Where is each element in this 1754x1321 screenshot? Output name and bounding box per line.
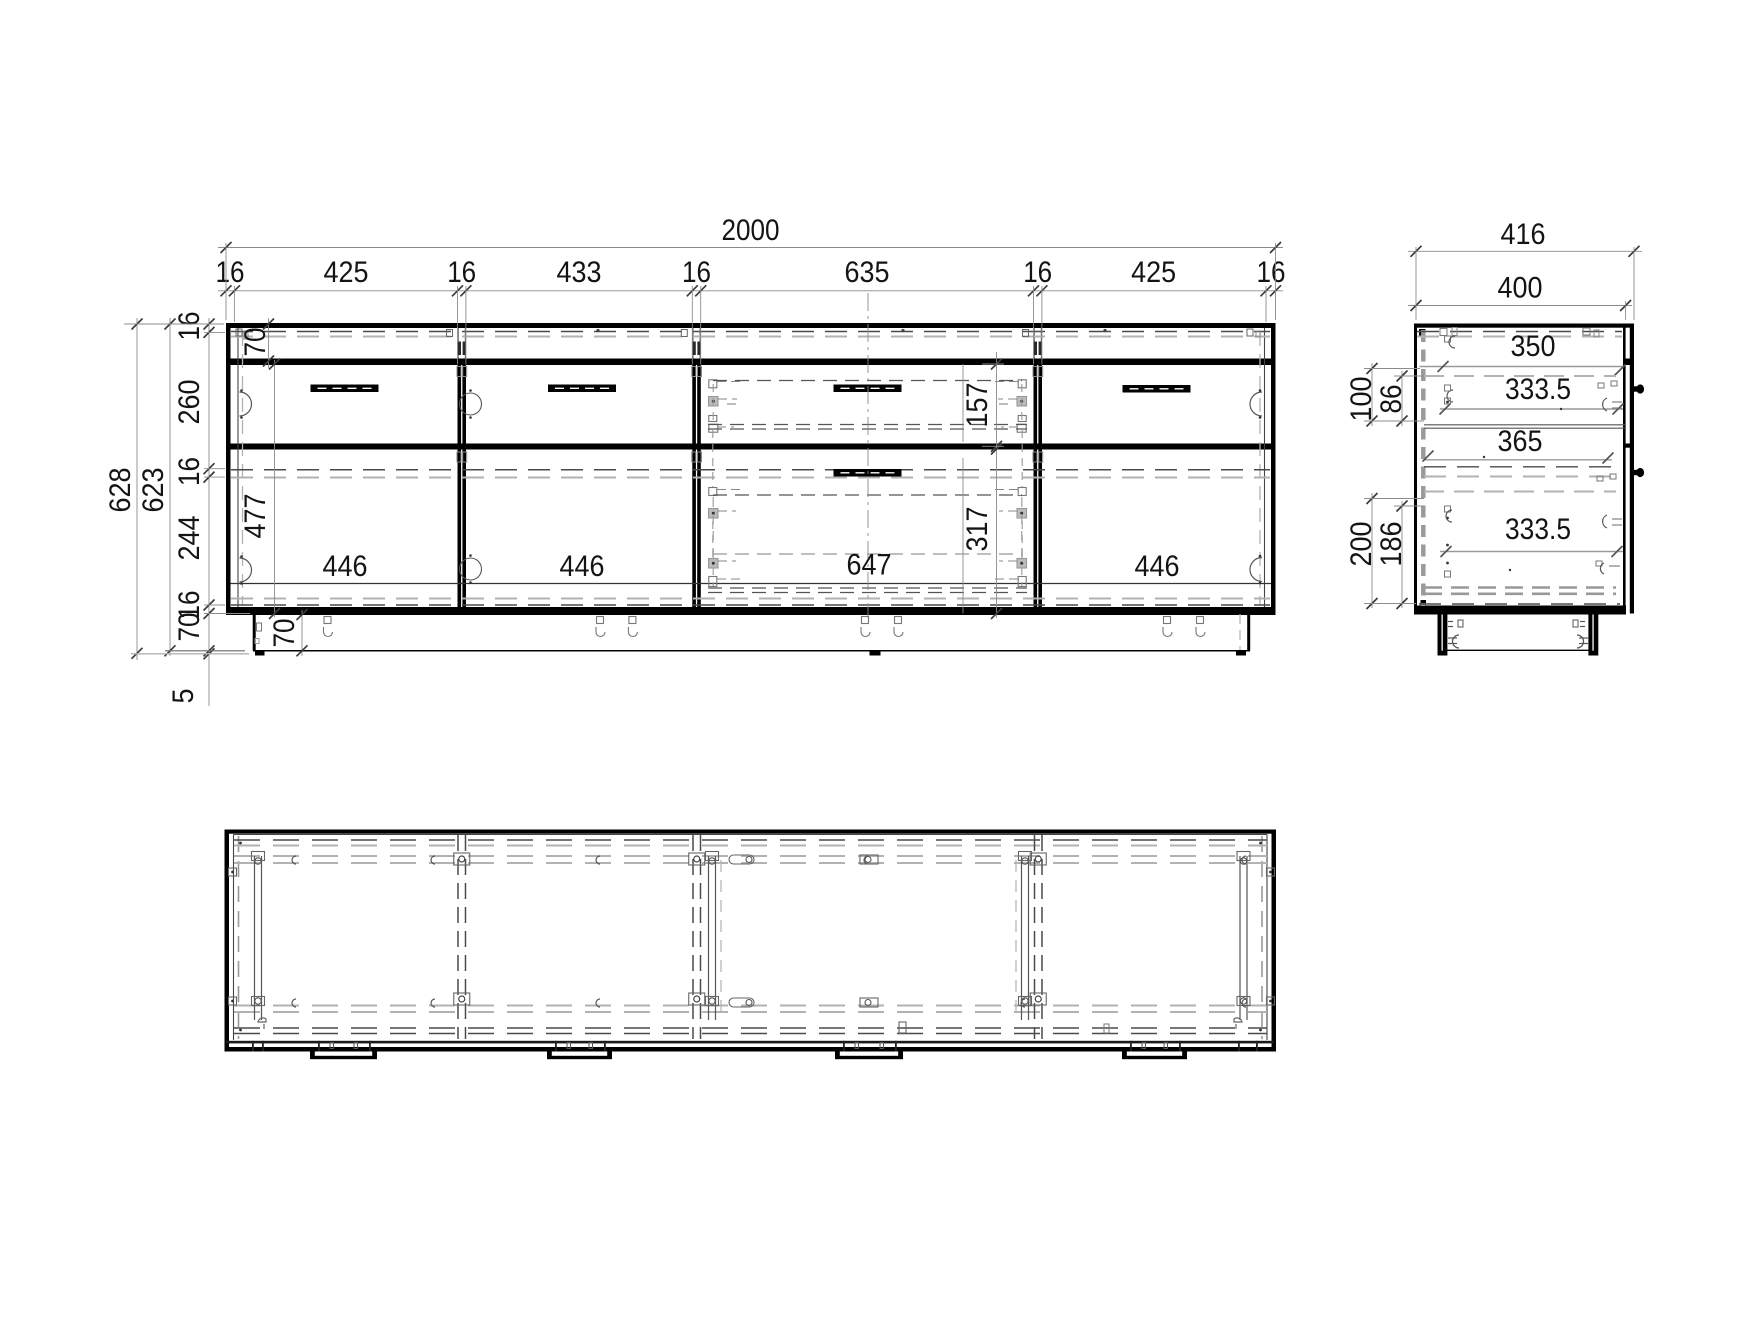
svg-text:477: 477 <box>239 494 272 539</box>
svg-text:86: 86 <box>1375 385 1408 414</box>
svg-text:2000: 2000 <box>722 214 780 247</box>
svg-text:70: 70 <box>239 328 272 357</box>
svg-text:16: 16 <box>173 312 206 341</box>
svg-text:433: 433 <box>557 256 602 289</box>
svg-text:260: 260 <box>173 380 206 425</box>
svg-text:200: 200 <box>1345 522 1378 567</box>
svg-text:628: 628 <box>104 468 137 513</box>
svg-text:70: 70 <box>268 619 301 648</box>
svg-text:425: 425 <box>324 256 369 289</box>
svg-text:446: 446 <box>560 550 605 583</box>
svg-text:100: 100 <box>1345 377 1378 422</box>
svg-text:350: 350 <box>1511 330 1556 363</box>
svg-text:635: 635 <box>845 256 890 289</box>
svg-text:16: 16 <box>682 256 711 289</box>
svg-text:333.5: 333.5 <box>1505 513 1571 546</box>
svg-text:446: 446 <box>1135 550 1180 583</box>
svg-text:365: 365 <box>1498 425 1543 458</box>
svg-text:16: 16 <box>1257 256 1286 289</box>
svg-text:16: 16 <box>173 457 206 486</box>
svg-text:157: 157 <box>961 383 994 428</box>
svg-text:400: 400 <box>1498 272 1543 305</box>
svg-text:16: 16 <box>1023 256 1052 289</box>
svg-text:416: 416 <box>1501 218 1546 251</box>
svg-text:623: 623 <box>137 468 170 513</box>
svg-text:647: 647 <box>847 549 892 582</box>
svg-text:244: 244 <box>173 516 206 561</box>
svg-text:425: 425 <box>1131 256 1176 289</box>
svg-text:70: 70 <box>173 613 206 642</box>
svg-text:5: 5 <box>167 689 200 704</box>
svg-text:186: 186 <box>1375 522 1408 567</box>
svg-text:16: 16 <box>216 256 245 289</box>
svg-text:446: 446 <box>323 550 368 583</box>
svg-text:16: 16 <box>447 256 476 289</box>
svg-text:317: 317 <box>961 507 994 552</box>
svg-text:333.5: 333.5 <box>1505 373 1571 406</box>
